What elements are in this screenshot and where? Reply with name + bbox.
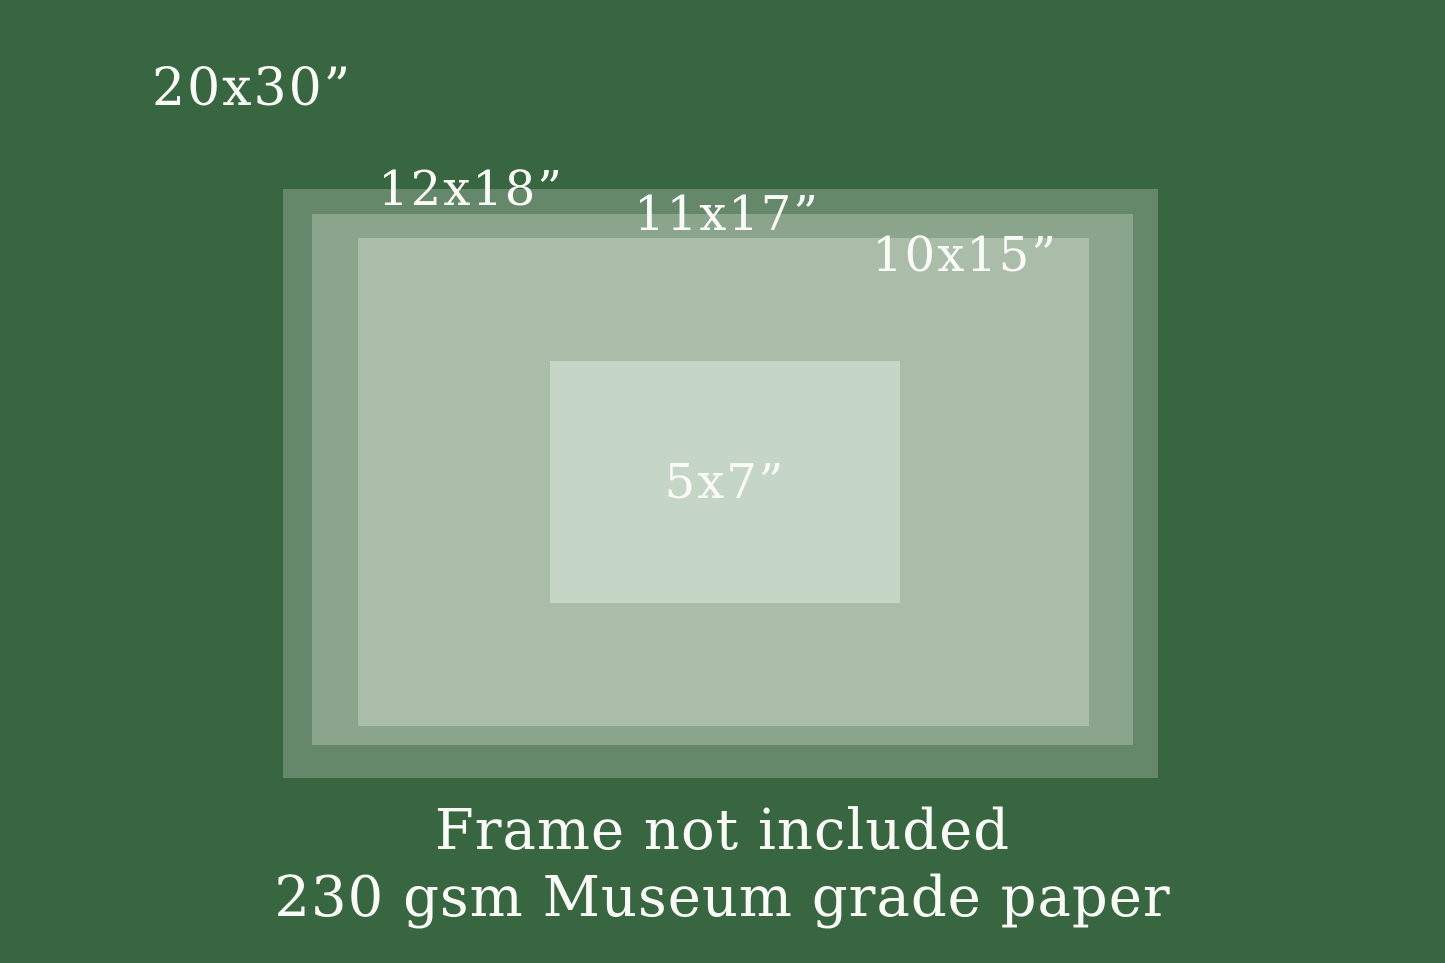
size-label-10x15: 10x15” xyxy=(872,231,1058,279)
size-label-12x18: 12x18” xyxy=(378,165,564,213)
size-label-20x30: 20x30” xyxy=(152,62,352,114)
size-rect-5x7: 5x7” xyxy=(550,361,900,603)
size-label-5x7: 5x7” xyxy=(665,458,786,506)
footer-note: Frame not included 230 gsm Museum grade … xyxy=(0,797,1445,931)
footer-line-frame: Frame not included xyxy=(0,797,1445,864)
print-size-chart: 20x30” 5x7” 12x18” 11x17” 10x15” Frame n… xyxy=(0,0,1445,963)
footer-line-paper: 230 gsm Museum grade paper xyxy=(0,864,1445,931)
size-label-11x17: 11x17” xyxy=(634,190,820,238)
